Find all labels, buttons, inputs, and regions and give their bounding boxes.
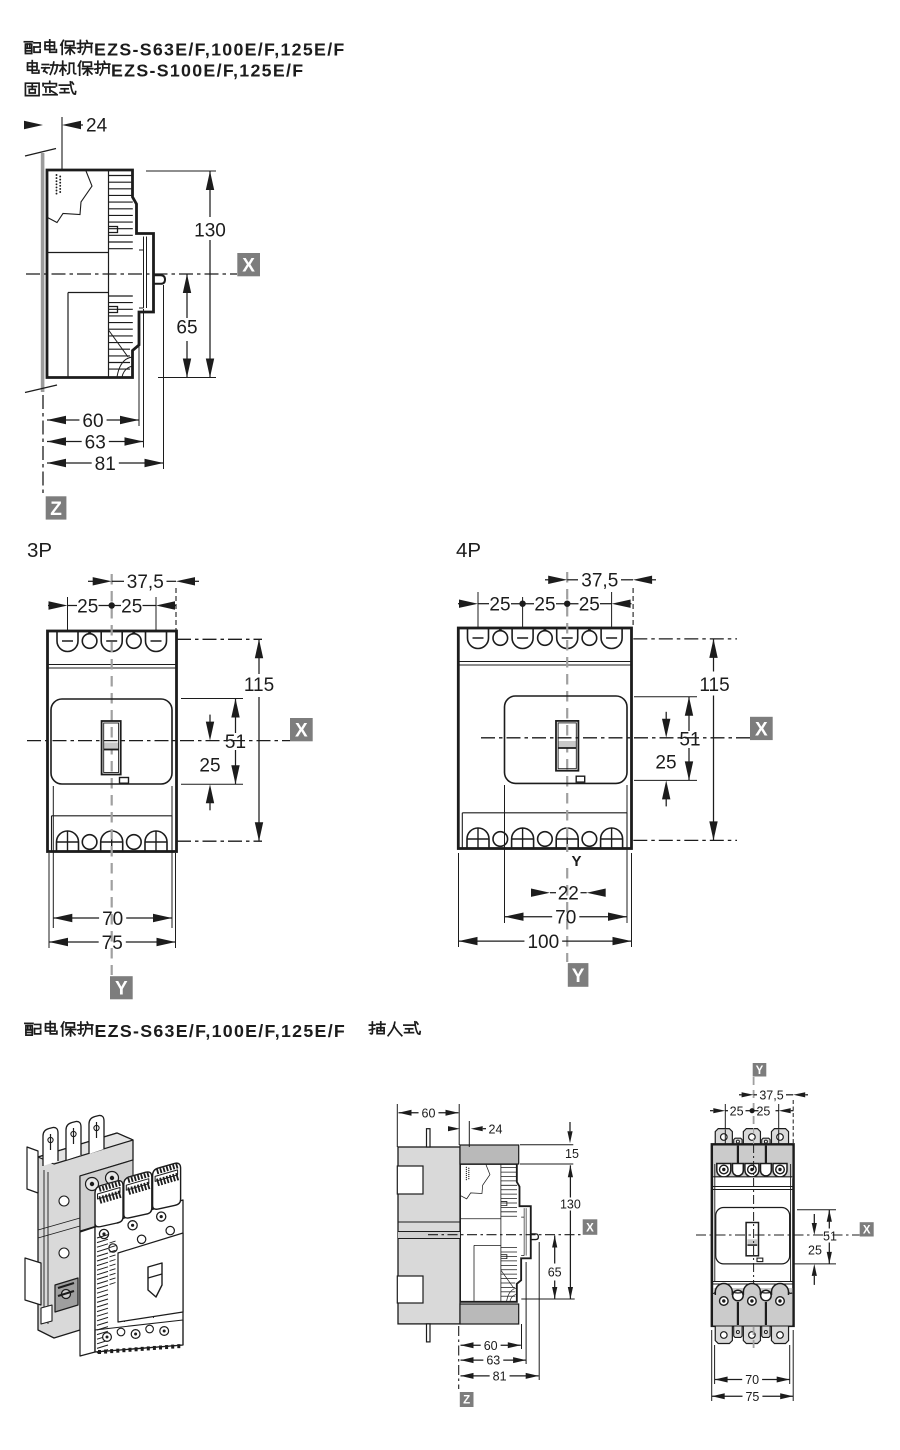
svg-text:Y: Y	[572, 966, 585, 987]
svg-text:Y: Y	[571, 853, 581, 870]
svg-text:X: X	[755, 719, 768, 740]
svg-text:25: 25	[121, 596, 142, 617]
svg-text:37,5: 37,5	[759, 1088, 783, 1102]
svg-text:60: 60	[422, 1106, 436, 1120]
svg-text:51: 51	[679, 730, 700, 751]
svg-text:EZS-S63E/F,100E/F,125E/F: EZS-S63E/F,100E/F,125E/F	[95, 1021, 347, 1041]
svg-text:Z: Z	[463, 1395, 470, 1407]
svg-text:130: 130	[560, 1197, 581, 1211]
svg-text:Y: Y	[756, 1065, 764, 1077]
svg-text:81: 81	[493, 1370, 507, 1384]
svg-text:25: 25	[730, 1104, 744, 1118]
svg-text:75: 75	[745, 1390, 759, 1404]
svg-text:25: 25	[199, 755, 220, 776]
svg-text:22: 22	[558, 884, 579, 905]
svg-text:75: 75	[102, 933, 123, 954]
svg-text:X: X	[586, 1222, 594, 1234]
svg-text:EZS-S63E/F,100E/F,125E/F: EZS-S63E/F,100E/F,125E/F	[94, 40, 346, 60]
svg-text:65: 65	[548, 1266, 562, 1280]
svg-text:37,5: 37,5	[581, 571, 618, 592]
svg-text:70: 70	[102, 909, 123, 930]
svg-text:25: 25	[756, 1104, 770, 1118]
svg-text:130: 130	[194, 220, 226, 241]
svg-text:100: 100	[527, 932, 559, 953]
svg-text:65: 65	[176, 318, 197, 339]
svg-text:15: 15	[565, 1147, 579, 1161]
svg-text:115: 115	[699, 675, 729, 696]
svg-text:70: 70	[555, 908, 576, 929]
svg-text:Y: Y	[115, 979, 128, 1000]
svg-text:37,5: 37,5	[127, 572, 164, 593]
svg-text:3P: 3P	[27, 539, 52, 562]
svg-text:51: 51	[225, 732, 246, 753]
svg-text:X: X	[242, 256, 255, 277]
svg-text:25: 25	[655, 752, 676, 773]
svg-text:25: 25	[808, 1244, 822, 1258]
svg-text:EZS-S100E/F,125E/F: EZS-S100E/F,125E/F	[111, 60, 304, 80]
svg-text:4P: 4P	[456, 539, 481, 562]
svg-text:115: 115	[244, 675, 274, 696]
svg-text:24: 24	[86, 116, 108, 137]
svg-text:X: X	[863, 1225, 871, 1237]
svg-text:63: 63	[85, 432, 106, 453]
svg-text:24: 24	[489, 1122, 503, 1136]
svg-text:25: 25	[77, 596, 98, 617]
svg-text:25: 25	[489, 594, 510, 615]
svg-text:60: 60	[484, 1339, 498, 1353]
svg-text:63: 63	[486, 1354, 500, 1368]
svg-text:70: 70	[745, 1373, 759, 1387]
svg-text:X: X	[295, 721, 308, 742]
svg-text:25: 25	[534, 594, 555, 615]
svg-text:60: 60	[82, 411, 103, 432]
svg-text:81: 81	[95, 454, 116, 475]
svg-text:Z: Z	[50, 499, 62, 520]
svg-text:51: 51	[823, 1229, 837, 1243]
svg-text:25: 25	[579, 594, 600, 615]
